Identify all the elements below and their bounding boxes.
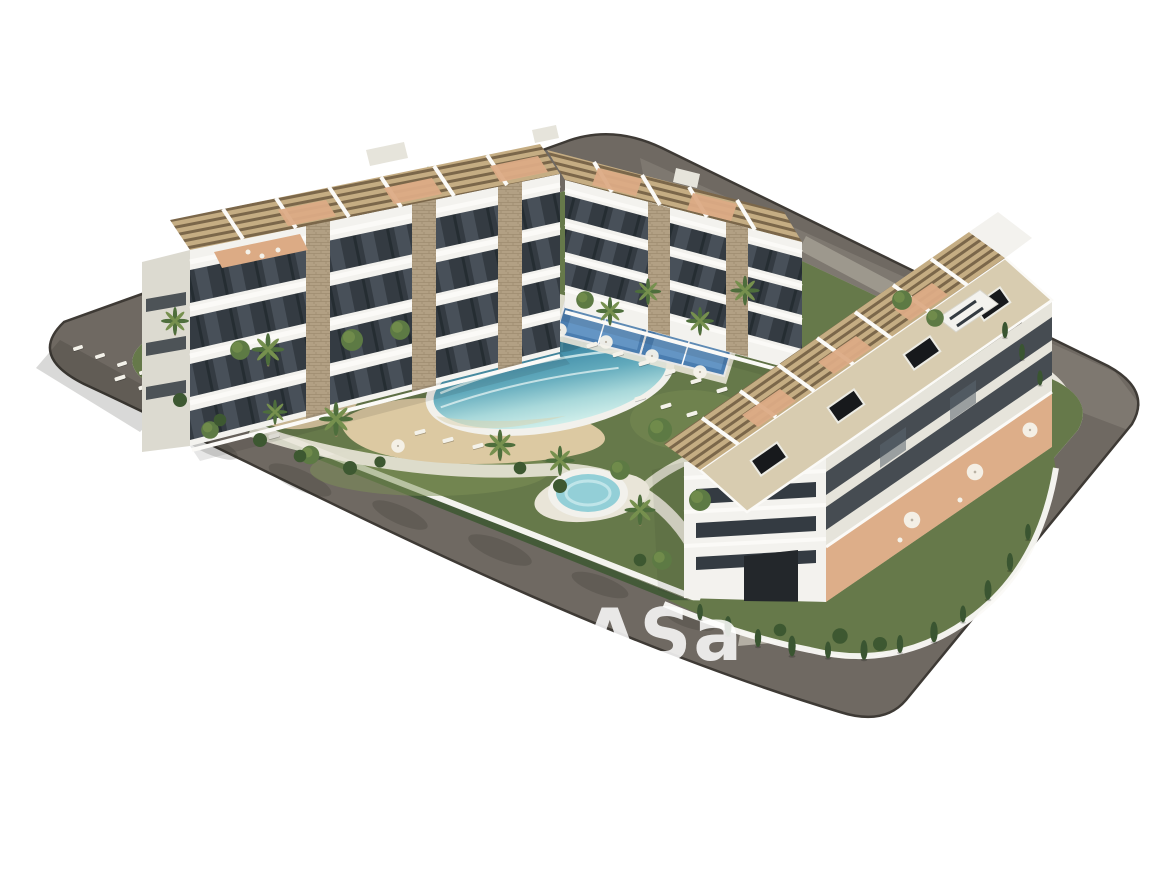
stone-column (306, 221, 330, 421)
render-canvas: cASa españa (0, 0, 1165, 880)
stone-column (648, 202, 670, 336)
stone-column (498, 181, 522, 372)
stone-column (412, 199, 436, 394)
watermark-main: cASa (537, 593, 744, 677)
watermark-sub: españa (542, 667, 748, 701)
